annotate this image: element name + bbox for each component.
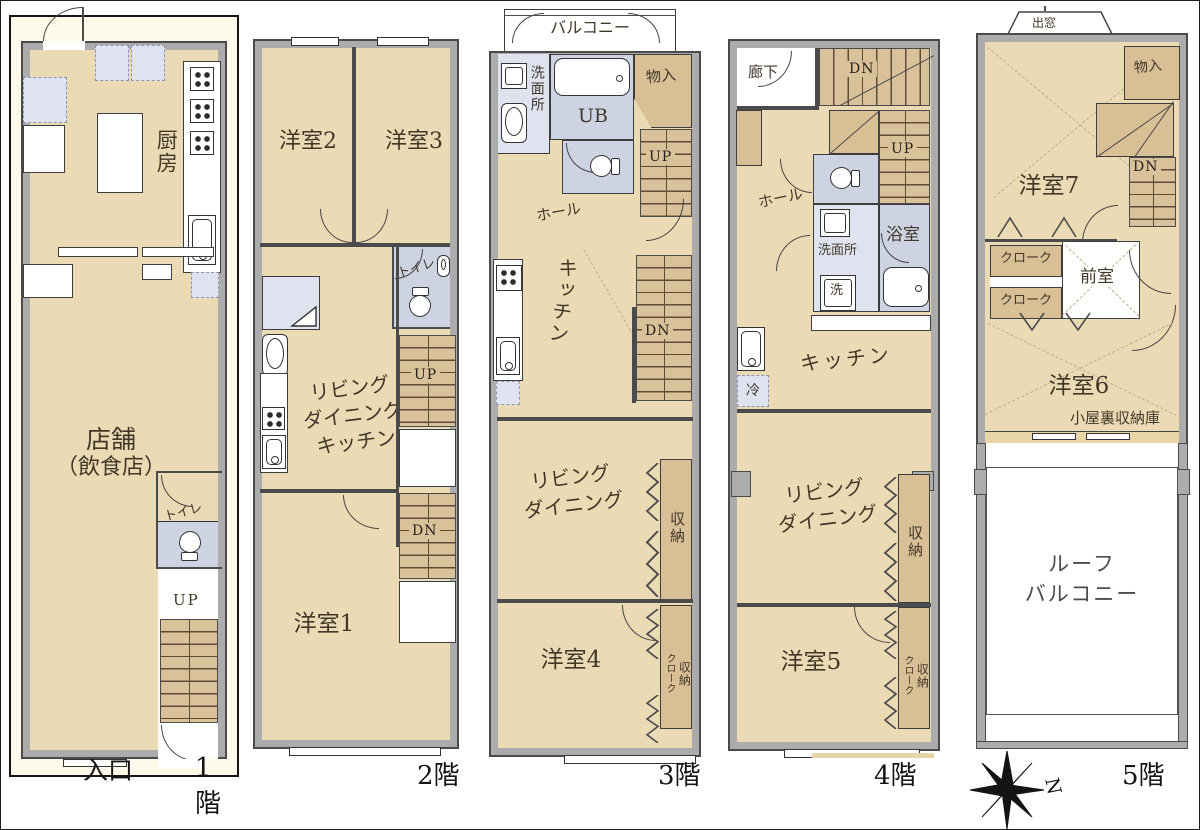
toilet-icon	[828, 167, 860, 191]
stairs-up	[160, 619, 218, 723]
wall	[737, 409, 931, 413]
up-label: UP	[411, 367, 440, 383]
washroom-label: 洗面所	[818, 243, 857, 259]
floor-3-label: 3階	[658, 755, 701, 792]
sink-icon	[501, 63, 527, 89]
stairs-up	[879, 110, 930, 204]
closet-door-zigzag-icon	[644, 531, 660, 597]
up-label: UP	[888, 141, 917, 157]
stair-landing	[399, 581, 456, 643]
cloak-label: クローク	[901, 655, 913, 695]
room3-label: 洋室3	[371, 129, 457, 155]
room1-label: 洋室1	[269, 611, 379, 639]
floor-4-plan: 廊下 DN UP ホール 洗面所 洗 浴室 冷 キッチン リビング ダイニング …	[728, 37, 942, 785]
washbasin-icon	[501, 103, 527, 143]
window	[1032, 433, 1076, 440]
floor-1-plan: 厨房 店舗 （飲食店） トイレ UP 入口 1階	[9, 15, 239, 777]
washroom-label: 洗面所	[528, 65, 545, 113]
closet-door-zigzag-icon	[644, 463, 660, 521]
attic-storage-label: 小屋裏収納庫	[1070, 409, 1160, 427]
stair-landing	[399, 429, 456, 487]
compass-icon	[970, 751, 1044, 829]
door-arc	[43, 7, 83, 41]
toilet-wall	[156, 471, 222, 473]
floorplan-canvas: 厨房 店舗 （飲食店） トイレ UP 入口 1階 洋室2 洋室3 トイレ リビン…	[0, 0, 1200, 830]
entrance-door-gap	[43, 41, 85, 50]
slope-triangle-icon	[1064, 311, 1092, 333]
bay-window-label: 出窓	[1032, 16, 1056, 30]
under-stair-closet	[736, 110, 762, 166]
bathtub-icon	[554, 58, 630, 96]
equipment-box	[496, 381, 520, 405]
closet-door-zigzag-icon	[882, 543, 898, 601]
counter	[58, 247, 138, 257]
floor-2-label: 2階	[417, 755, 460, 792]
wall-tab	[731, 471, 751, 497]
closet-door-zigzag-icon	[882, 611, 898, 659]
cloak1-label: クローク	[990, 251, 1062, 267]
floor-3-plan: バルコニー 洗面所 UB 物入 UP ホール キッチン DN リビング ダイニン…	[488, 7, 704, 783]
closet-door-zigzag-icon	[644, 695, 660, 743]
roof-balcony-label: ルーフ バルコニー	[1014, 549, 1150, 610]
equipment-box	[23, 77, 67, 123]
cloak-label: クローク	[663, 653, 675, 693]
closet-door-zigzag-icon	[882, 677, 898, 729]
floor-2-plan: 洋室2 洋室3 トイレ リビング ダイニング キッチン UP DN 洋室1 2階	[251, 37, 463, 785]
counter	[23, 264, 73, 298]
closet-label: 収納	[668, 511, 686, 545]
kitchen-sink-icon	[262, 435, 286, 469]
kitchen-label: 厨房	[153, 129, 178, 175]
stove-icon	[190, 67, 214, 91]
window	[291, 37, 339, 46]
equipment-box	[95, 45, 129, 81]
dn-label: DN	[1130, 159, 1161, 175]
room7-label: 洋室7	[994, 173, 1104, 201]
window	[377, 37, 429, 46]
gap	[990, 277, 1062, 287]
toilet-icon	[409, 287, 433, 319]
dn-label: DN	[846, 61, 877, 77]
slope-triangle-icon	[996, 215, 1024, 239]
washer-label: 洗	[830, 283, 843, 299]
toilet-icon	[588, 155, 620, 179]
kitchen-counter	[811, 315, 931, 331]
table	[23, 125, 65, 173]
toilet-icon	[177, 529, 201, 561]
wall	[985, 431, 1179, 443]
closet-door-zigzag-icon	[882, 477, 898, 533]
slope-triangle-icon	[1018, 311, 1046, 333]
stairs-down	[819, 48, 930, 106]
floor-5-label: 5階	[1122, 755, 1165, 792]
floor-4-label: 4階	[874, 755, 917, 792]
stove-icon	[262, 407, 285, 430]
room6-label: 洋室6	[1024, 373, 1134, 401]
room2-label: 洋室2	[265, 129, 351, 155]
unit-bath-label: UB	[578, 105, 608, 128]
closet-door-zigzag-icon	[644, 609, 660, 659]
room4-label: 洋室4	[516, 647, 626, 675]
equipment-box	[191, 272, 219, 298]
storage-label: 物入	[1133, 58, 1163, 78]
kitchen-sink-icon	[188, 215, 216, 265]
dn-label: DN	[642, 323, 673, 339]
window	[1086, 433, 1130, 440]
cloak2-label: クローク	[990, 293, 1062, 309]
wall	[497, 417, 693, 421]
compass-north-label: N	[1039, 776, 1065, 797]
kitchen-sink-icon	[737, 327, 765, 371]
counter	[142, 264, 172, 280]
floor-1-label: 1階	[195, 753, 237, 820]
balcony-wall	[976, 741, 1188, 749]
wall	[260, 489, 398, 493]
kitchen-sink-icon	[496, 337, 520, 375]
floor-5-plan: 出窓 洋室7 物入 DN クローク クローク 前室 洋室6 小屋裏収納庫 ルーフ…	[974, 5, 1194, 830]
stove-icon	[190, 131, 214, 155]
slope-triangle-icon	[1050, 215, 1078, 239]
table	[97, 113, 143, 193]
bathtub-icon	[883, 267, 929, 307]
shower-corner-icon	[288, 303, 318, 328]
sink-icon	[820, 209, 850, 237]
door-leaf	[82, 7, 84, 41]
up-label: UP	[646, 149, 675, 165]
bay-window-tick	[1044, 6, 1046, 11]
ldk-label: リビング ダイニング キッチン	[296, 369, 409, 462]
dn-label: DN	[409, 523, 440, 539]
up-label: UP	[173, 591, 200, 609]
storage-label: 物入	[645, 65, 677, 86]
entrance-label: 入口	[83, 751, 133, 787]
closet-label: 収納	[906, 525, 924, 559]
equipment-box	[131, 45, 165, 81]
room5-label: 洋室5	[756, 649, 866, 677]
closet2-label: 収納	[677, 661, 691, 687]
anteroom-label: 前室	[1078, 267, 1116, 287]
fridge-label: 冷	[746, 383, 760, 400]
wall	[497, 599, 693, 603]
stove-icon	[190, 99, 214, 123]
stove-icon	[496, 265, 522, 291]
wall-basin-icon	[437, 255, 450, 277]
counter	[142, 247, 214, 257]
closet2-label: 収納	[915, 663, 929, 689]
washbasin-icon	[262, 334, 288, 376]
